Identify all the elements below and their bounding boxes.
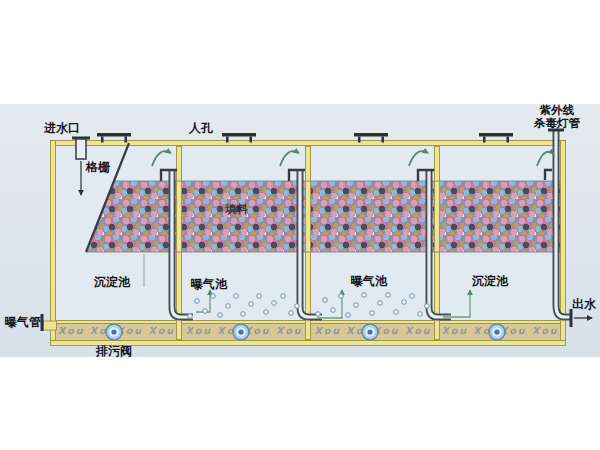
chamber-divider-1 <box>176 146 182 340</box>
tank-left-wall <box>50 140 56 346</box>
chamber-4-label: 沉淀池 <box>472 273 508 290</box>
media-label: 填料 <box>225 202 249 217</box>
manhole-label: 人孔 <box>189 120 213 137</box>
chamber-divider-3 <box>434 146 440 340</box>
outlet-label: 出水 <box>572 296 596 313</box>
chamber-divider-2 <box>305 146 311 340</box>
air-pipe-label: 曝气管 <box>5 314 41 331</box>
chamber-3-label: 曝气池 <box>351 273 387 290</box>
packing-media <box>86 181 560 252</box>
uv-lamp-label: 紫外线 杀毒灯管 <box>528 104 586 130</box>
chamber-2-label: 曝气池 <box>191 276 227 293</box>
drain-valve-label: 排污阀 <box>96 343 132 360</box>
inlet-label: 进水口 <box>44 120 80 137</box>
watermark-text: Xou XouXou Xou <box>312 325 434 339</box>
treatment-tank-diagram: Xou XouXou Xou Xou XouXou Xou Xou XouXou… <box>0 0 600 450</box>
tank-right-wall <box>560 140 566 346</box>
watermark-text: Xou XouXou Xou <box>57 325 176 339</box>
watermark-text: Xou XouXou Xou <box>441 325 559 339</box>
bar-screen-label: 格栅 <box>86 159 110 176</box>
chamber-1-label: 沉淀池 <box>94 274 130 291</box>
uv-lamp-label-line2: 杀毒灯管 <box>528 117 586 130</box>
watermark-text: Xou XouXou Xou <box>183 325 305 339</box>
